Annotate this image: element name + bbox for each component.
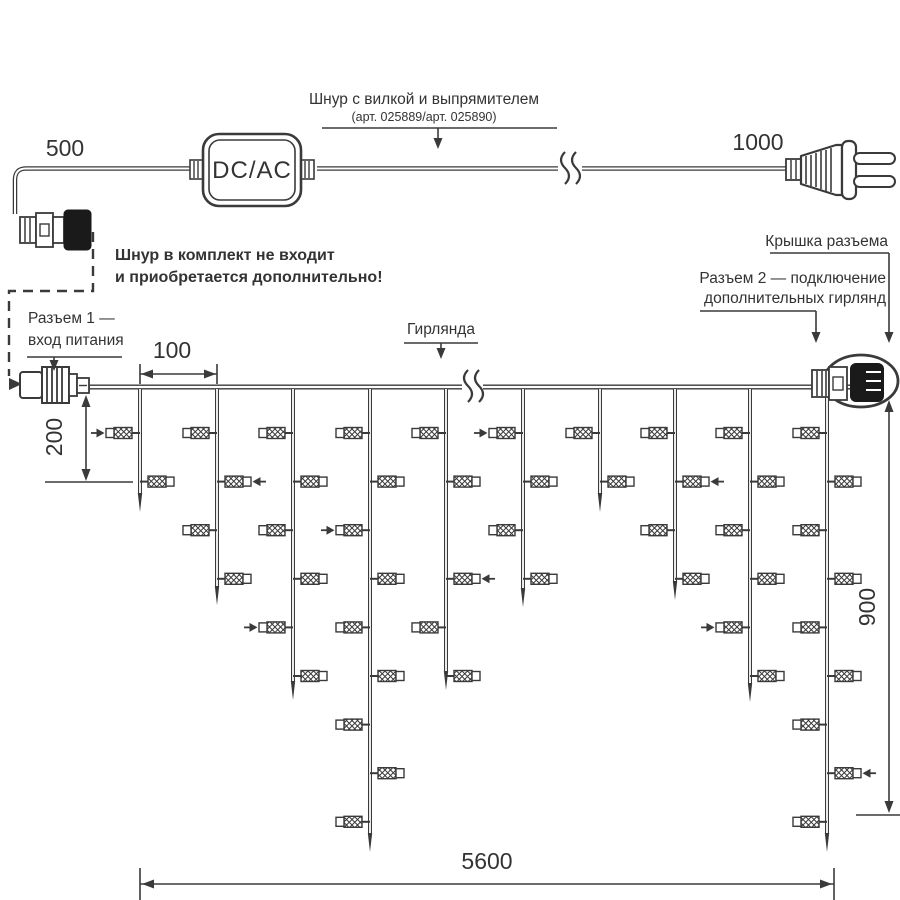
lamp bbox=[675, 476, 709, 487]
lamp bbox=[293, 573, 327, 584]
lamp bbox=[259, 428, 293, 439]
lamp bbox=[259, 525, 293, 536]
dim-5600-group: 5600 bbox=[140, 848, 834, 900]
lamp bbox=[750, 573, 784, 584]
dim-5600: 5600 bbox=[461, 848, 512, 874]
converter-right-nub bbox=[301, 160, 314, 179]
lamp bbox=[793, 816, 827, 827]
lamp bbox=[336, 525, 370, 536]
lamp bbox=[716, 622, 750, 633]
icicle-drop bbox=[641, 389, 724, 600]
drop-tip bbox=[368, 833, 372, 852]
lamp bbox=[641, 428, 675, 439]
dim-900-group: 900 bbox=[854, 400, 900, 815]
lamp bbox=[183, 428, 217, 439]
icicle-drop bbox=[321, 389, 404, 852]
lamp bbox=[412, 428, 446, 439]
cord-output-connector bbox=[20, 210, 91, 250]
lamp bbox=[523, 573, 557, 584]
lamp bbox=[793, 525, 827, 536]
lamp bbox=[489, 525, 523, 536]
lamp bbox=[827, 671, 861, 682]
lamp bbox=[600, 476, 634, 487]
converter-left-nub bbox=[190, 160, 203, 179]
lamp bbox=[716, 525, 750, 536]
flash-arrow-icon bbox=[701, 623, 715, 632]
dim-1000: 1000 bbox=[732, 129, 783, 155]
connector1-label-line1: Разъем 1 — bbox=[28, 310, 115, 327]
lamp bbox=[566, 428, 600, 439]
garland-callout: Гирлянда bbox=[404, 321, 478, 359]
cord-note-line1: Шнур в комплект не входит bbox=[115, 247, 335, 264]
converter-label: DC/AC bbox=[212, 157, 292, 184]
dim-900: 900 bbox=[854, 588, 880, 626]
lamp bbox=[412, 622, 446, 633]
flash-arrow-icon bbox=[244, 623, 258, 632]
cord-note: Шнур в комплект не входит и приобретаетс… bbox=[115, 247, 383, 286]
flash-arrow-icon bbox=[321, 526, 335, 535]
garland-diagram: DC/AC bbox=[0, 0, 900, 900]
icicle-drop bbox=[183, 389, 266, 605]
lamp bbox=[183, 525, 217, 536]
cord-articles: (арт. 025889/арт. 025890) bbox=[351, 110, 496, 124]
drop-tip bbox=[521, 588, 525, 607]
connector1-label-line2: вход питания bbox=[28, 332, 124, 349]
flash-arrow-icon bbox=[474, 429, 488, 438]
drop-tip bbox=[598, 493, 602, 512]
flash-arrow-icon bbox=[253, 477, 267, 486]
wire-break-icon bbox=[462, 370, 483, 402]
cord-note-line2: и приобретается дополнительно! bbox=[115, 269, 383, 286]
drop-tip bbox=[215, 586, 219, 605]
garland-drops bbox=[91, 389, 876, 852]
product-scheme: DC/AC bbox=[0, 0, 900, 900]
flash-arrow-icon bbox=[863, 769, 877, 778]
dim-100-group: 100 bbox=[140, 337, 217, 384]
lamp bbox=[523, 476, 557, 487]
dim-200: 200 bbox=[41, 418, 67, 456]
lamp bbox=[675, 573, 709, 584]
drop-tip bbox=[291, 681, 295, 700]
lamp bbox=[370, 476, 404, 487]
lamp bbox=[336, 622, 370, 633]
connector1-callout: Разъем 1 — вход питания bbox=[27, 310, 124, 371]
drop-tip bbox=[138, 493, 142, 512]
flash-arrow-icon bbox=[91, 429, 105, 438]
lamp bbox=[827, 573, 861, 584]
lamp bbox=[217, 573, 251, 584]
connector-1 bbox=[20, 367, 89, 403]
lamp bbox=[259, 622, 293, 633]
lamp bbox=[641, 525, 675, 536]
power-plug bbox=[786, 141, 895, 199]
lamp bbox=[827, 768, 861, 779]
lamp bbox=[293, 671, 327, 682]
dim-500: 500 bbox=[46, 135, 84, 161]
lamp bbox=[140, 476, 174, 487]
lamp bbox=[827, 476, 861, 487]
cap-callout: Крышка разъема bbox=[765, 233, 893, 343]
dim-100: 100 bbox=[153, 337, 191, 363]
lamp bbox=[336, 816, 370, 827]
lamp bbox=[489, 428, 523, 439]
drop-tip bbox=[825, 833, 829, 852]
lamp bbox=[446, 476, 480, 487]
connector-2 bbox=[812, 355, 898, 407]
lamp bbox=[293, 476, 327, 487]
drop-tip bbox=[673, 581, 677, 600]
cord-break-icon bbox=[558, 152, 582, 184]
lamp bbox=[750, 671, 784, 682]
garland-label: Гирлянда bbox=[407, 321, 475, 338]
icicle-drop bbox=[91, 389, 174, 512]
lamp bbox=[793, 622, 827, 633]
lamp bbox=[793, 719, 827, 730]
lamp bbox=[370, 573, 404, 584]
icicle-drop bbox=[701, 389, 784, 702]
lamp bbox=[716, 428, 750, 439]
dc-ac-converter: DC/AC bbox=[190, 134, 314, 206]
connector2-label-line2: дополнительных гирлянд bbox=[704, 290, 886, 307]
lamp bbox=[793, 428, 827, 439]
connector2-label-line1: Разъем 2 — подключение bbox=[699, 270, 886, 287]
lamp bbox=[106, 428, 140, 439]
flash-arrow-icon bbox=[711, 477, 725, 486]
cord-title: Шнур с вилкой и выпрямителем bbox=[309, 91, 539, 108]
icicle-drop bbox=[566, 389, 634, 512]
icicle-drop bbox=[244, 389, 327, 700]
cord-title-callout: Шнур с вилкой и выпрямителем (арт. 02588… bbox=[309, 91, 557, 149]
connector2-callout: Разъем 2 — подключение дополнительных ги… bbox=[699, 270, 886, 343]
lamp bbox=[370, 768, 404, 779]
lamp bbox=[217, 476, 251, 487]
drop-tip bbox=[748, 683, 752, 702]
icicle-drop bbox=[474, 389, 557, 607]
drop-tip bbox=[444, 671, 448, 690]
lamp bbox=[750, 476, 784, 487]
lamp bbox=[336, 428, 370, 439]
lamp bbox=[370, 671, 404, 682]
cap-label: Крышка разъема bbox=[765, 233, 888, 250]
flash-arrow-icon bbox=[482, 574, 496, 583]
lamp bbox=[336, 719, 370, 730]
lamp bbox=[446, 573, 480, 584]
connector-cap bbox=[850, 363, 884, 402]
lamp bbox=[446, 671, 480, 682]
